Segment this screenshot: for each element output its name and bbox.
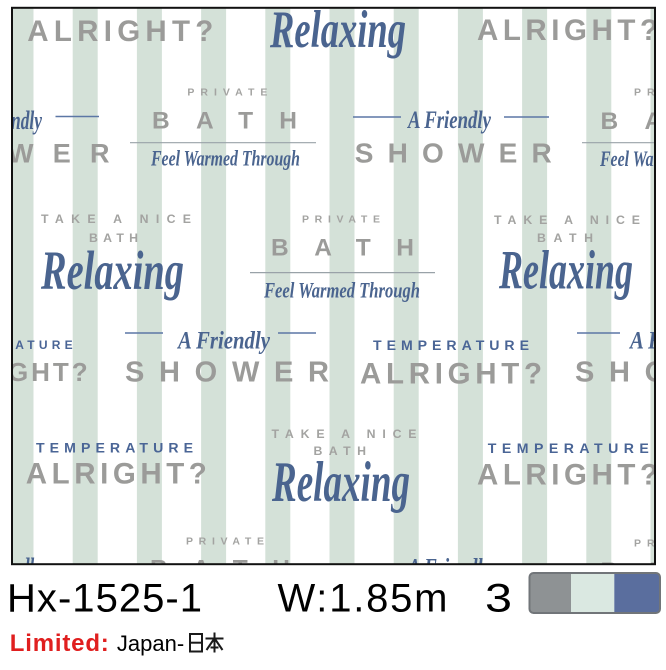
svg-text:Relaxing: Relaxing	[498, 240, 633, 301]
svg-text:ALRIGHT?: ALRIGHT?	[477, 458, 658, 491]
svg-text:TAKE A NICE: TAKE A NICE	[272, 427, 417, 441]
svg-text:TAKE A NICE: TAKE A NICE	[41, 212, 191, 226]
svg-text:ALRIGHT?: ALRIGHT?	[477, 14, 658, 47]
svg-text:ALRIGHT?: ALRIGHT?	[360, 357, 542, 390]
svg-text:Hx-1525-1: Hx-1525-1	[7, 576, 202, 620]
svg-text:TAKE A NICE: TAKE A NICE	[494, 213, 640, 227]
svg-text:W:1.85m: W:1.85m	[278, 576, 448, 620]
svg-text:Feel Warmed Through: Feel Warmed Through	[150, 146, 300, 171]
svg-text:3: 3	[485, 576, 512, 620]
svg-text:A Friendly: A Friendly	[176, 326, 270, 355]
svg-text:Relaxing: Relaxing	[40, 240, 184, 301]
svg-text:Relaxing: Relaxing	[269, 1, 406, 59]
svg-text:ALRIGHT?: ALRIGHT?	[27, 15, 213, 48]
svg-text:A Friendly: A Friendly	[407, 105, 492, 134]
svg-text:SHOWER: SHOWER	[575, 356, 666, 388]
svg-text:WER: WER	[8, 138, 110, 168]
svg-text:ALRIGHT?: ALRIGHT?	[26, 458, 207, 491]
svg-text:Relaxing: Relaxing	[271, 451, 410, 514]
svg-text:Limited:: Limited:	[10, 630, 109, 657]
svg-text:ndly: ndly	[11, 106, 42, 135]
svg-text:Japan-: Japan-	[117, 631, 184, 656]
svg-text:Feel Warmed Through: Feel Warmed Through	[263, 278, 420, 303]
svg-text:GHT?: GHT?	[8, 357, 88, 387]
